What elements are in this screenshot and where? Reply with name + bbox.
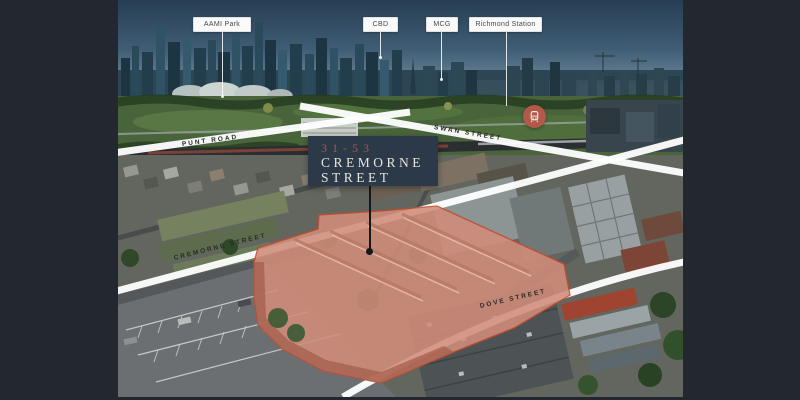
leader-line [222, 32, 223, 96]
frame-background: PUNT ROAD SWAN STREET CREMORNE STREET DO… [0, 0, 800, 400]
leader-line [380, 32, 381, 57]
title-leader-line [369, 186, 371, 250]
train-icon [528, 110, 541, 123]
callout-label: MCG [426, 17, 458, 32]
leader-line [506, 32, 507, 106]
callout-label: Richmond Station [469, 17, 542, 32]
address-number: 31-53 [321, 142, 438, 155]
station-marker [523, 105, 546, 128]
leader-dot [379, 56, 382, 59]
aerial-photo: PUNT ROAD SWAN STREET CREMORNE STREET DO… [118, 0, 683, 397]
address-street-line1: CREMORNE [321, 155, 438, 170]
leader-dot [440, 78, 443, 81]
callout-label: CBD [363, 17, 398, 32]
address-street-line2: STREET [321, 170, 438, 185]
leader-dot [221, 95, 224, 98]
title-leader-dot [366, 248, 373, 255]
property-highlight [118, 0, 683, 397]
property-title-card: 31-53 CREMORNE STREET [308, 136, 438, 186]
callout-label: AAMI Park [193, 17, 251, 32]
leader-line [441, 32, 442, 79]
